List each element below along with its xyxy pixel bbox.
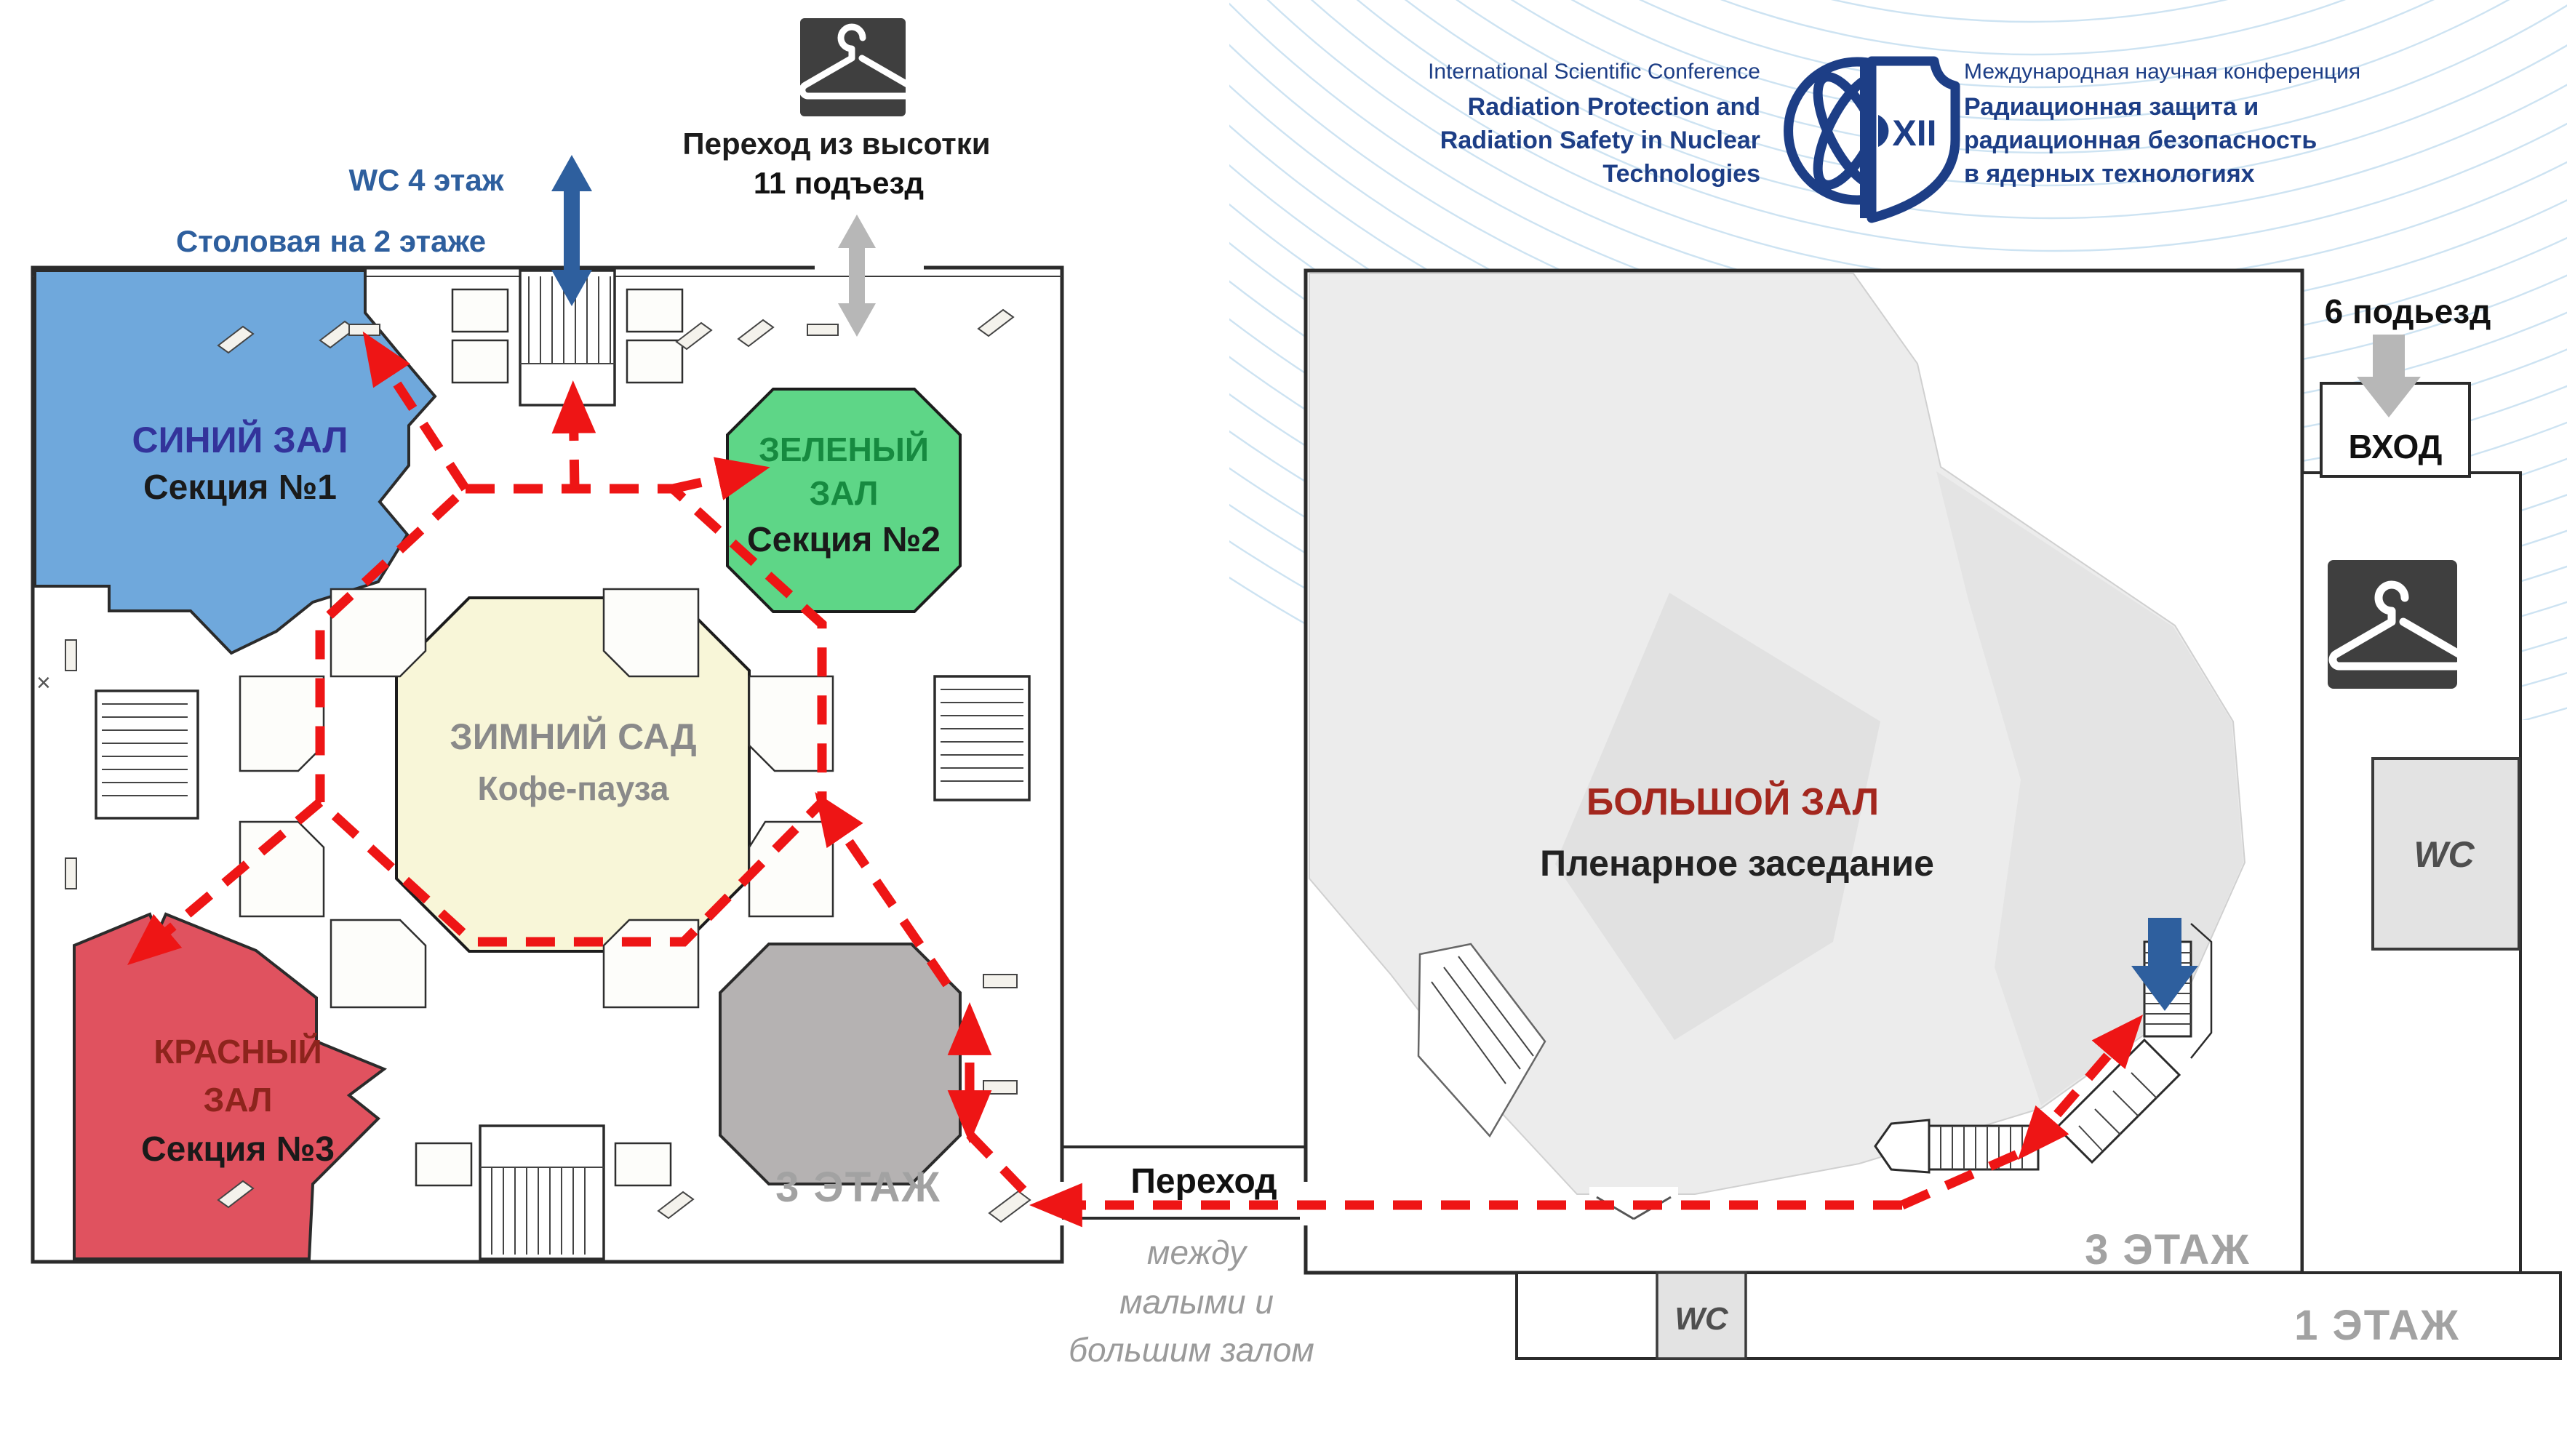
- right-building-plan: БОЛЬШОЙ ЗАЛ Пленарное заседание 3 ЭТАЖ: [1300, 271, 2302, 1273]
- winter-garden-title: ЗИМНИЙ САД: [450, 716, 696, 757]
- left-building-plan: СИНИЙ ЗАЛ Секция №1 КРАСНЫЙ ЗАЛ Секция №…: [33, 263, 1068, 1262]
- corridor-subtitle-2: малыми и: [1119, 1283, 1274, 1321]
- coat-check-box: [800, 18, 906, 116]
- wc-side-label: WC: [2414, 834, 2475, 875]
- conference-logo-icon: XII: [1789, 61, 1955, 218]
- stairwell-right: [935, 676, 1029, 800]
- big-hall-title: БОЛЬШОЙ ЗАЛ: [1586, 780, 1879, 823]
- conference-header: International Scientific Conference Radi…: [1428, 60, 2360, 218]
- winter-garden-subtitle: Кофе-пауза: [478, 769, 669, 807]
- transition-corridor: Переход между малыми и большим залом: [1062, 1147, 1314, 1369]
- stairwell-left: [96, 691, 198, 818]
- red-hall-section: Секция №3: [141, 1130, 335, 1169]
- header-en-line1: International Scientific Conference: [1428, 60, 1760, 84]
- red-hall-title1: КРАСНЫЙ: [153, 1033, 322, 1071]
- highrise-transition-label: Переход из высотки: [682, 127, 990, 161]
- blue-hall-section: Секция №1: [143, 468, 337, 507]
- venue-map: International Scientific Conference Radi…: [0, 0, 2567, 1456]
- green-hall-section: Секция №2: [747, 521, 941, 559]
- gray-octagon-area: [720, 944, 960, 1184]
- header-ru-line4: в ядерных технологиях: [1964, 160, 2255, 188]
- corridor-title: Переход: [1130, 1162, 1277, 1201]
- logo-numeral: XII: [1892, 113, 1936, 153]
- header-ru-line1: Международная научная конференция: [1964, 60, 2360, 84]
- big-hall-subtitle: Пленарное заседание: [1540, 843, 1934, 884]
- floor1-label: 1 ЭТАЖ: [2294, 1302, 2460, 1349]
- blue-hall-title: СИНИЙ ЗАЛ: [132, 419, 348, 460]
- red-hall-title2: ЗАЛ: [204, 1081, 273, 1119]
- corridor-subtitle-3: большим залом: [1069, 1331, 1314, 1369]
- corridor-subtitle-1: между: [1147, 1233, 1248, 1271]
- wc-bottom-label: WC: [1674, 1301, 1729, 1337]
- green-hall-title1: ЗЕЛЕНЫЙ: [759, 431, 929, 468]
- header-ru-line3: радиационная безопасность: [1964, 127, 2317, 154]
- entrance-6-label: 6 подьезд: [2325, 292, 2491, 330]
- header-en-line3: Radiation Safety in Nuclear: [1440, 127, 1760, 154]
- entrance-11-label: 11 подъезд: [754, 166, 924, 200]
- header-en-line2: Radiation Protection and: [1468, 93, 1760, 121]
- entrance-box-label: ВХОД: [2349, 428, 2443, 465]
- edge-cross-mark: ×: [36, 669, 51, 697]
- left-floor-label: 3 ЭТАЖ: [775, 1164, 941, 1211]
- wc-floor4-label: WC 4 этаж: [348, 163, 504, 197]
- right-floor3-label: 3 ЭТАЖ: [2085, 1226, 2251, 1273]
- right-wing: ВХОД 6 подьезд WC: [2302, 292, 2520, 1273]
- header-ru-line2: Радиационная защита и: [1964, 93, 2259, 121]
- green-hall-title2: ЗАЛ: [810, 474, 879, 512]
- header-en-line4: Technologies: [1602, 160, 1760, 188]
- first-floor-band: WC 1 ЭТАЖ: [1517, 1273, 2560, 1359]
- canteen-label: Столовая на 2 этаже: [176, 224, 486, 258]
